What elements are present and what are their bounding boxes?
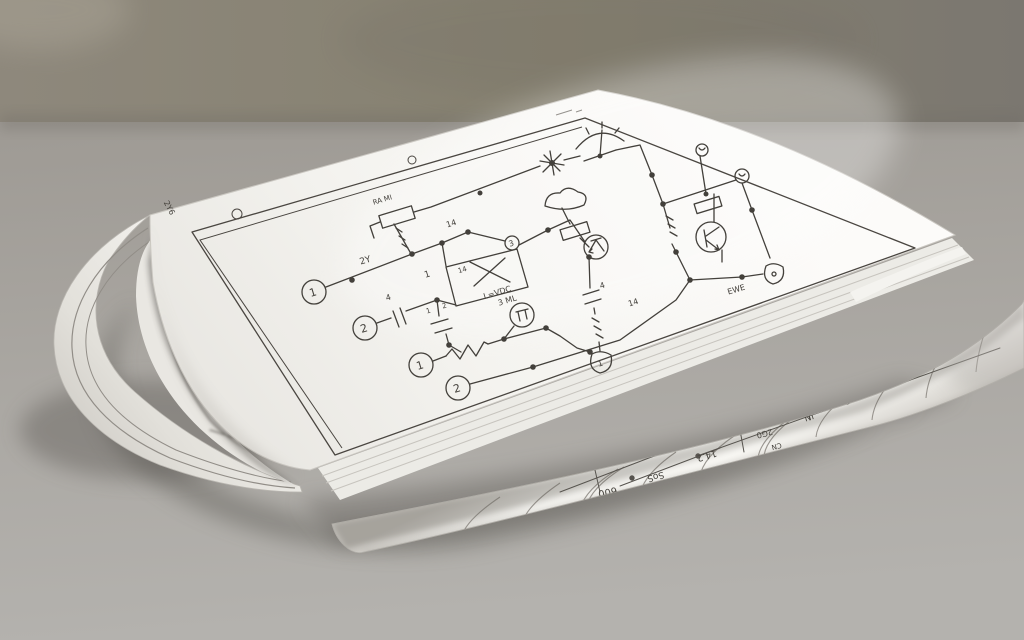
photo-of-folded-schematic-booklet: 600 SoS 14.2 2G0 CN IN O NOS	[0, 0, 1024, 640]
scene-canvas: 600 SoS 14.2 2G0 CN IN O NOS	[0, 0, 1024, 640]
